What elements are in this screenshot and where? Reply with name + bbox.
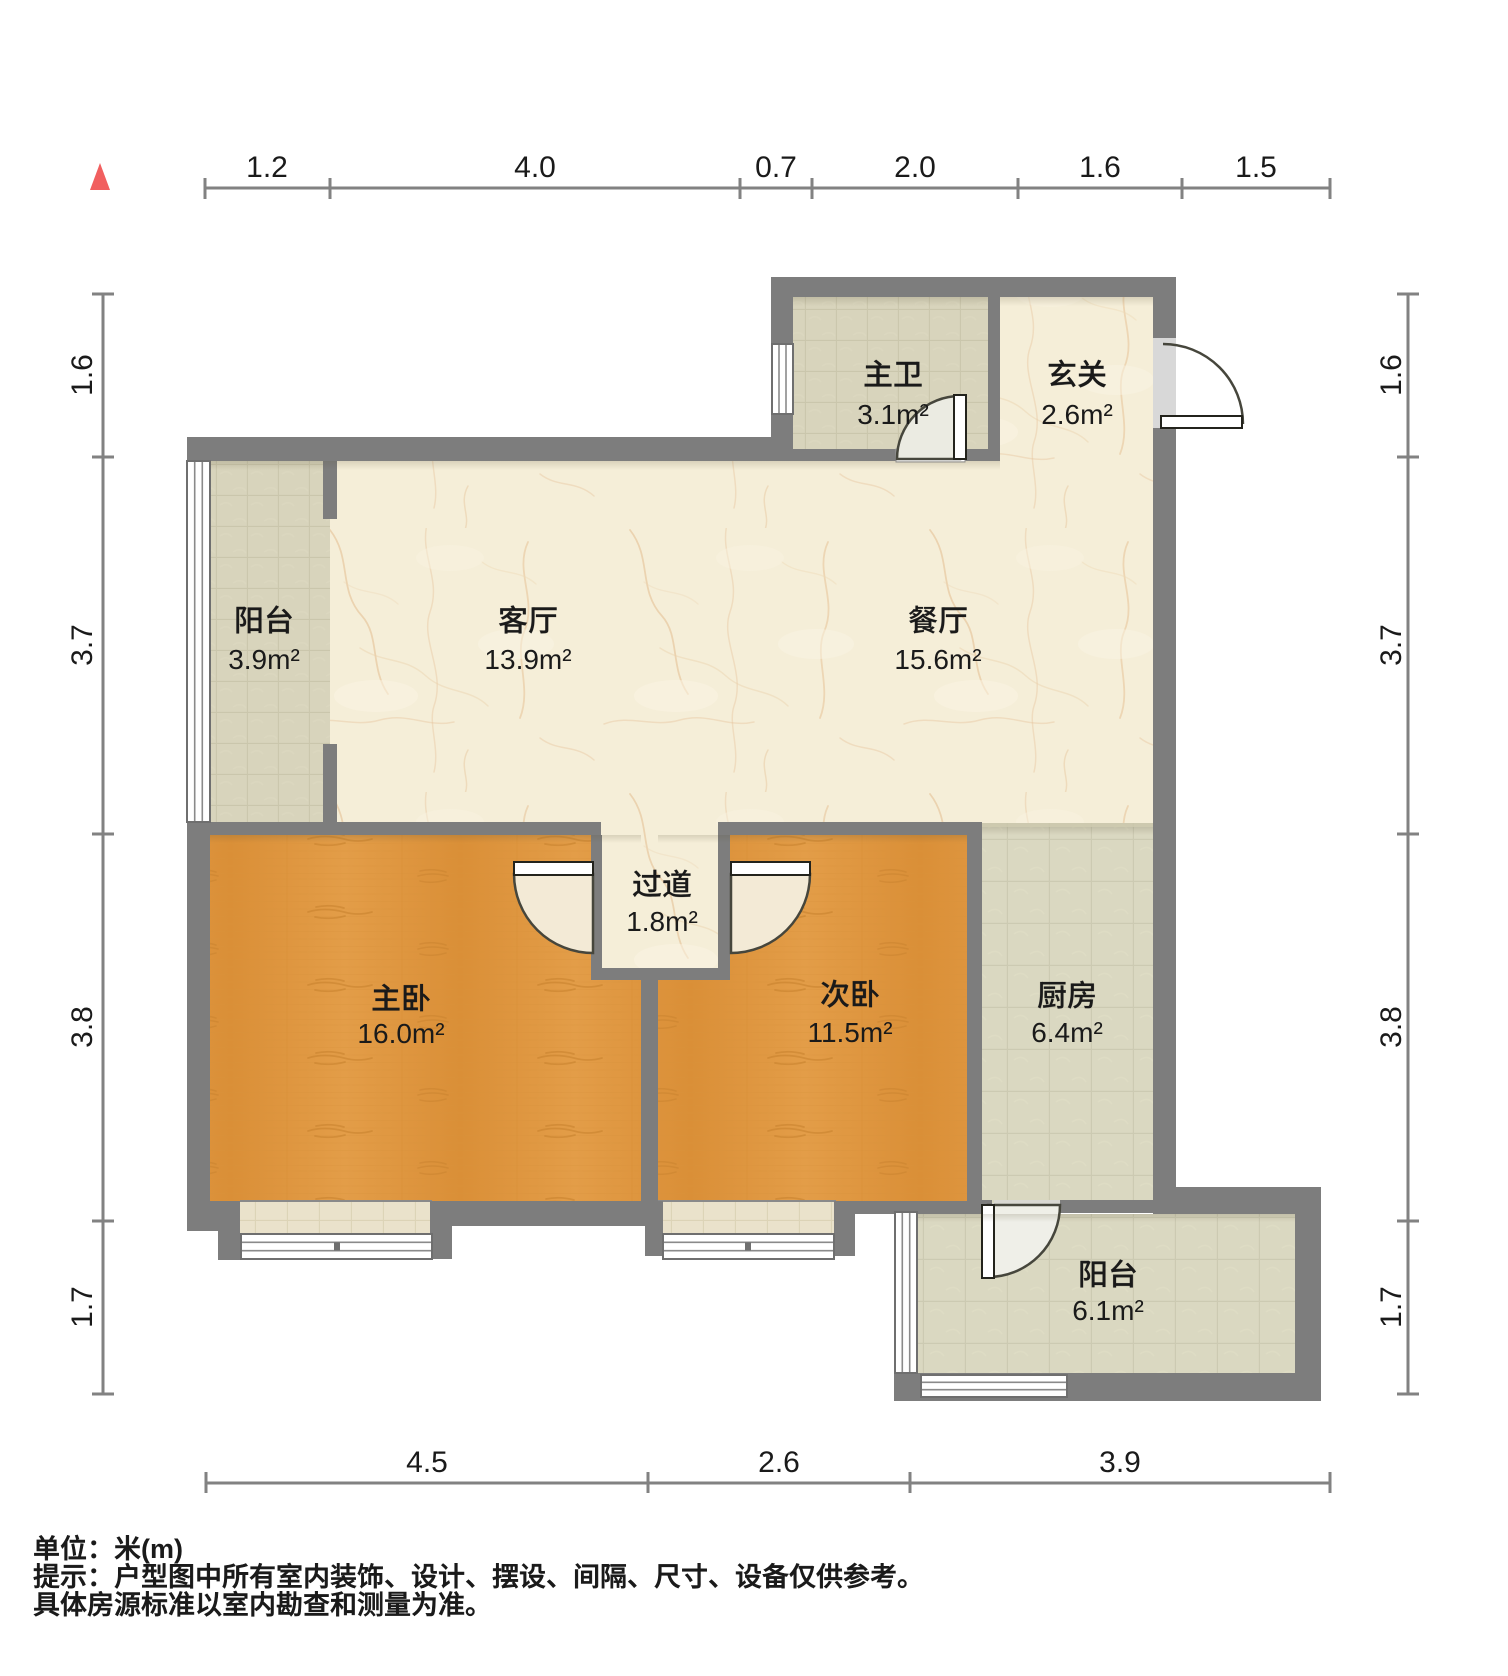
svg-text:3.9m²: 3.9m²	[228, 644, 300, 675]
svg-text:16.0m²: 16.0m²	[357, 1018, 444, 1049]
svg-text:1.8m²: 1.8m²	[626, 906, 698, 937]
svg-text:6.1m²: 6.1m²	[1072, 1295, 1144, 1326]
svg-text:3.1m²: 3.1m²	[857, 399, 929, 430]
svg-text:6.4m²: 6.4m²	[1031, 1017, 1103, 1048]
svg-text:2.6: 2.6	[758, 1446, 800, 1479]
svg-text:1.2: 1.2	[246, 151, 288, 184]
svg-text:1.6: 1.6	[1079, 151, 1121, 184]
svg-text:4.0: 4.0	[514, 151, 556, 184]
svg-text:1.7: 1.7	[1375, 1286, 1408, 1328]
svg-text:1.5: 1.5	[1235, 151, 1277, 184]
svg-text:1.7: 1.7	[66, 1286, 99, 1328]
svg-text:3.7: 3.7	[1375, 624, 1408, 666]
svg-text:1.6: 1.6	[1375, 354, 1408, 396]
svg-text:4.5: 4.5	[406, 1446, 448, 1479]
svg-text:3.9: 3.9	[1099, 1446, 1141, 1479]
svg-text:(m): (m)	[141, 1534, 183, 1564]
svg-text:3.7: 3.7	[66, 624, 99, 666]
svg-text:11.5m²: 11.5m²	[807, 1017, 892, 1048]
svg-text:0.7: 0.7	[755, 151, 797, 184]
svg-text:13.9m²: 13.9m²	[484, 644, 571, 675]
svg-text:15.6m²: 15.6m²	[894, 644, 981, 675]
svg-text:3.8: 3.8	[66, 1006, 99, 1048]
svg-text:3.8: 3.8	[1375, 1006, 1408, 1048]
svg-text:2.6m²: 2.6m²	[1041, 399, 1113, 430]
svg-text:1.6: 1.6	[66, 354, 99, 396]
svg-text:2.0: 2.0	[894, 151, 936, 184]
